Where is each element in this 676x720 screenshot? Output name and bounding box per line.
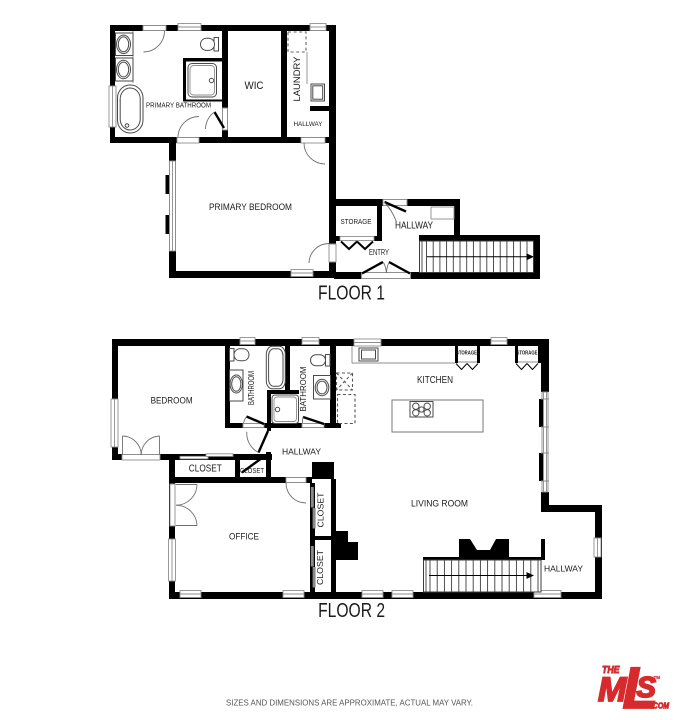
svg-text:SIZES AND DIMENSIONS ARE APPRO: SIZES AND DIMENSIONS ARE APPROXIMATE, AC… (226, 698, 473, 708)
svg-text:LAUNDRY: LAUNDRY (292, 57, 302, 102)
svg-text:CLOSET: CLOSET (240, 468, 265, 475)
svg-text:BATHROOM: BATHROOM (298, 367, 308, 412)
svg-text:LIVING ROOM: LIVING ROOM (411, 499, 468, 510)
svg-text:PRIMARY BEDROOM: PRIMARY BEDROOM (209, 202, 292, 213)
svg-text:PRIMARY BATHROOM: PRIMARY BATHROOM (146, 101, 211, 110)
svg-text:CLOSET: CLOSET (189, 463, 222, 475)
svg-text:HALLWAY: HALLWAY (544, 565, 584, 574)
svg-text:STORAGE: STORAGE (517, 351, 539, 357)
svg-text:ENTRY: ENTRY (369, 248, 390, 257)
svg-text:TM: TM (654, 675, 661, 680)
svg-text:OFFICE: OFFICE (229, 532, 259, 543)
svg-text:FLOOR 2: FLOOR 2 (318, 600, 385, 622)
svg-text:BATHROOM: BATHROOM (246, 371, 256, 405)
svg-text:HALLWAY: HALLWAY (282, 448, 322, 457)
svg-text:STORAGE: STORAGE (341, 217, 372, 226)
svg-text:CLOSET: CLOSET (316, 550, 325, 585)
svg-text:CLOSET: CLOSET (317, 492, 326, 527)
svg-text:WIC: WIC (245, 80, 264, 92)
svg-text:HALLWAY: HALLWAY (294, 121, 323, 128)
svg-text:BEDROOM: BEDROOM (151, 396, 193, 407)
svg-text:KITCHEN: KITCHEN (417, 375, 453, 386)
svg-text:STORAGE: STORAGE (456, 351, 478, 357)
svg-text:HALLWAY: HALLWAY (395, 221, 433, 232)
svg-text:.COM: .COM (651, 702, 669, 711)
svg-text:FLOOR 1: FLOOR 1 (318, 283, 385, 305)
